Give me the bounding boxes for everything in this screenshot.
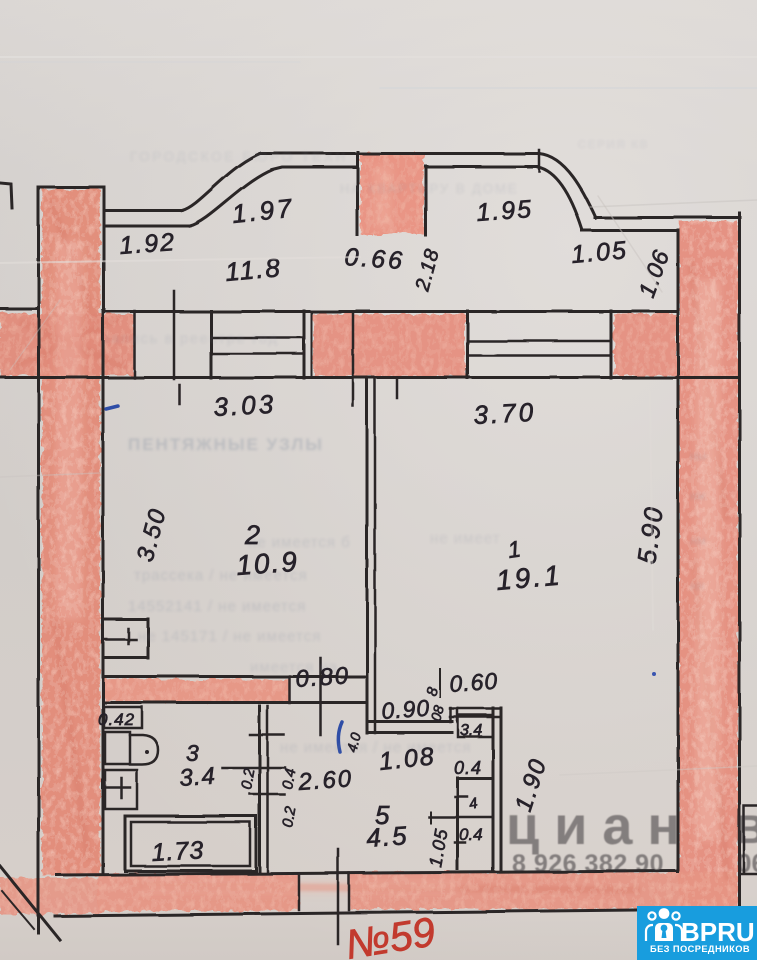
svg-text:не имеется / не имеется: не имеется / не имеется	[280, 739, 472, 756]
svg-text:0.66: 0.66	[344, 243, 406, 275]
svg-text:0.80: 0.80	[295, 662, 351, 693]
svg-text:0.90: 0.90	[381, 695, 431, 724]
svg-text:3: 3	[186, 740, 199, 766]
svg-text:не 145171 / не имеется: не 145171 / не имеется	[138, 628, 321, 645]
svg-text:2: 2	[244, 520, 260, 550]
svg-text:1.05: 1.05	[570, 236, 629, 269]
svg-text:1.92: 1.92	[118, 228, 176, 260]
svg-text:НА КВАРТИРУ В ДОМЕ: НА КВАРТИРУ В ДОМЕ	[340, 181, 518, 196]
svg-text:нж: нж	[690, 488, 706, 503]
svg-text:10.9: 10.9	[235, 546, 300, 581]
svg-text:14552141 / не имеется: 14552141 / не имеется	[128, 598, 306, 615]
svg-text:ГОРОДСКОЕ БЮРО ТЕХН: ГОРОДСКОЕ БЮРО ТЕХН	[130, 149, 348, 164]
svg-text:циан: циан	[506, 796, 695, 856]
svg-text:0.4: 0.4	[454, 758, 482, 778]
svg-text:19.1: 19.1	[495, 559, 564, 596]
svg-text:0.42: 0.42	[98, 710, 135, 729]
svg-text:06: 06	[737, 848, 757, 878]
svg-text:11.8: 11.8	[224, 252, 283, 287]
svg-text:2.60: 2.60	[297, 765, 354, 796]
svg-text:8 926 382 90: 8 926 382 90	[512, 850, 664, 878]
svg-text:3.4: 3.4	[179, 763, 217, 792]
svg-text:0.4: 0.4	[279, 767, 299, 790]
svg-text:3.4: 3.4	[460, 722, 482, 739]
svg-text:нм: нм	[690, 533, 706, 548]
svg-text:0.4: 0.4	[459, 825, 483, 844]
svg-text:БЕЗ ПОСРЕДНИКОВ: БЕЗ ПОСРЕДНИКОВ	[650, 944, 750, 954]
svg-text:BPRU: BPRU	[681, 917, 755, 947]
svg-text:0.60: 0.60	[449, 668, 499, 697]
svg-text:3.03: 3.03	[213, 389, 277, 422]
svg-text:1.08: 1.08	[378, 742, 437, 776]
svg-text:1.73: 1.73	[151, 836, 205, 867]
svg-text:4.5: 4.5	[365, 820, 409, 853]
svg-text:в: в	[734, 797, 757, 855]
svg-text:ПЕНТЯЖНЫЕ УЗЛЫ: ПЕНТЯЖНЫЕ УЗЛЫ	[128, 435, 324, 454]
svg-text:СЕРИЯ КВ: СЕРИЯ КВ	[578, 139, 649, 151]
svg-text:3.70: 3.70	[473, 397, 537, 430]
svg-text:запись в реестре год: запись в реестре год	[103, 330, 279, 346]
svg-text:не имеет: не имеет	[430, 530, 501, 547]
svg-text:1.95: 1.95	[475, 195, 533, 227]
svg-text:ня: ня	[690, 578, 704, 593]
svg-text:ны: ны	[690, 448, 707, 463]
